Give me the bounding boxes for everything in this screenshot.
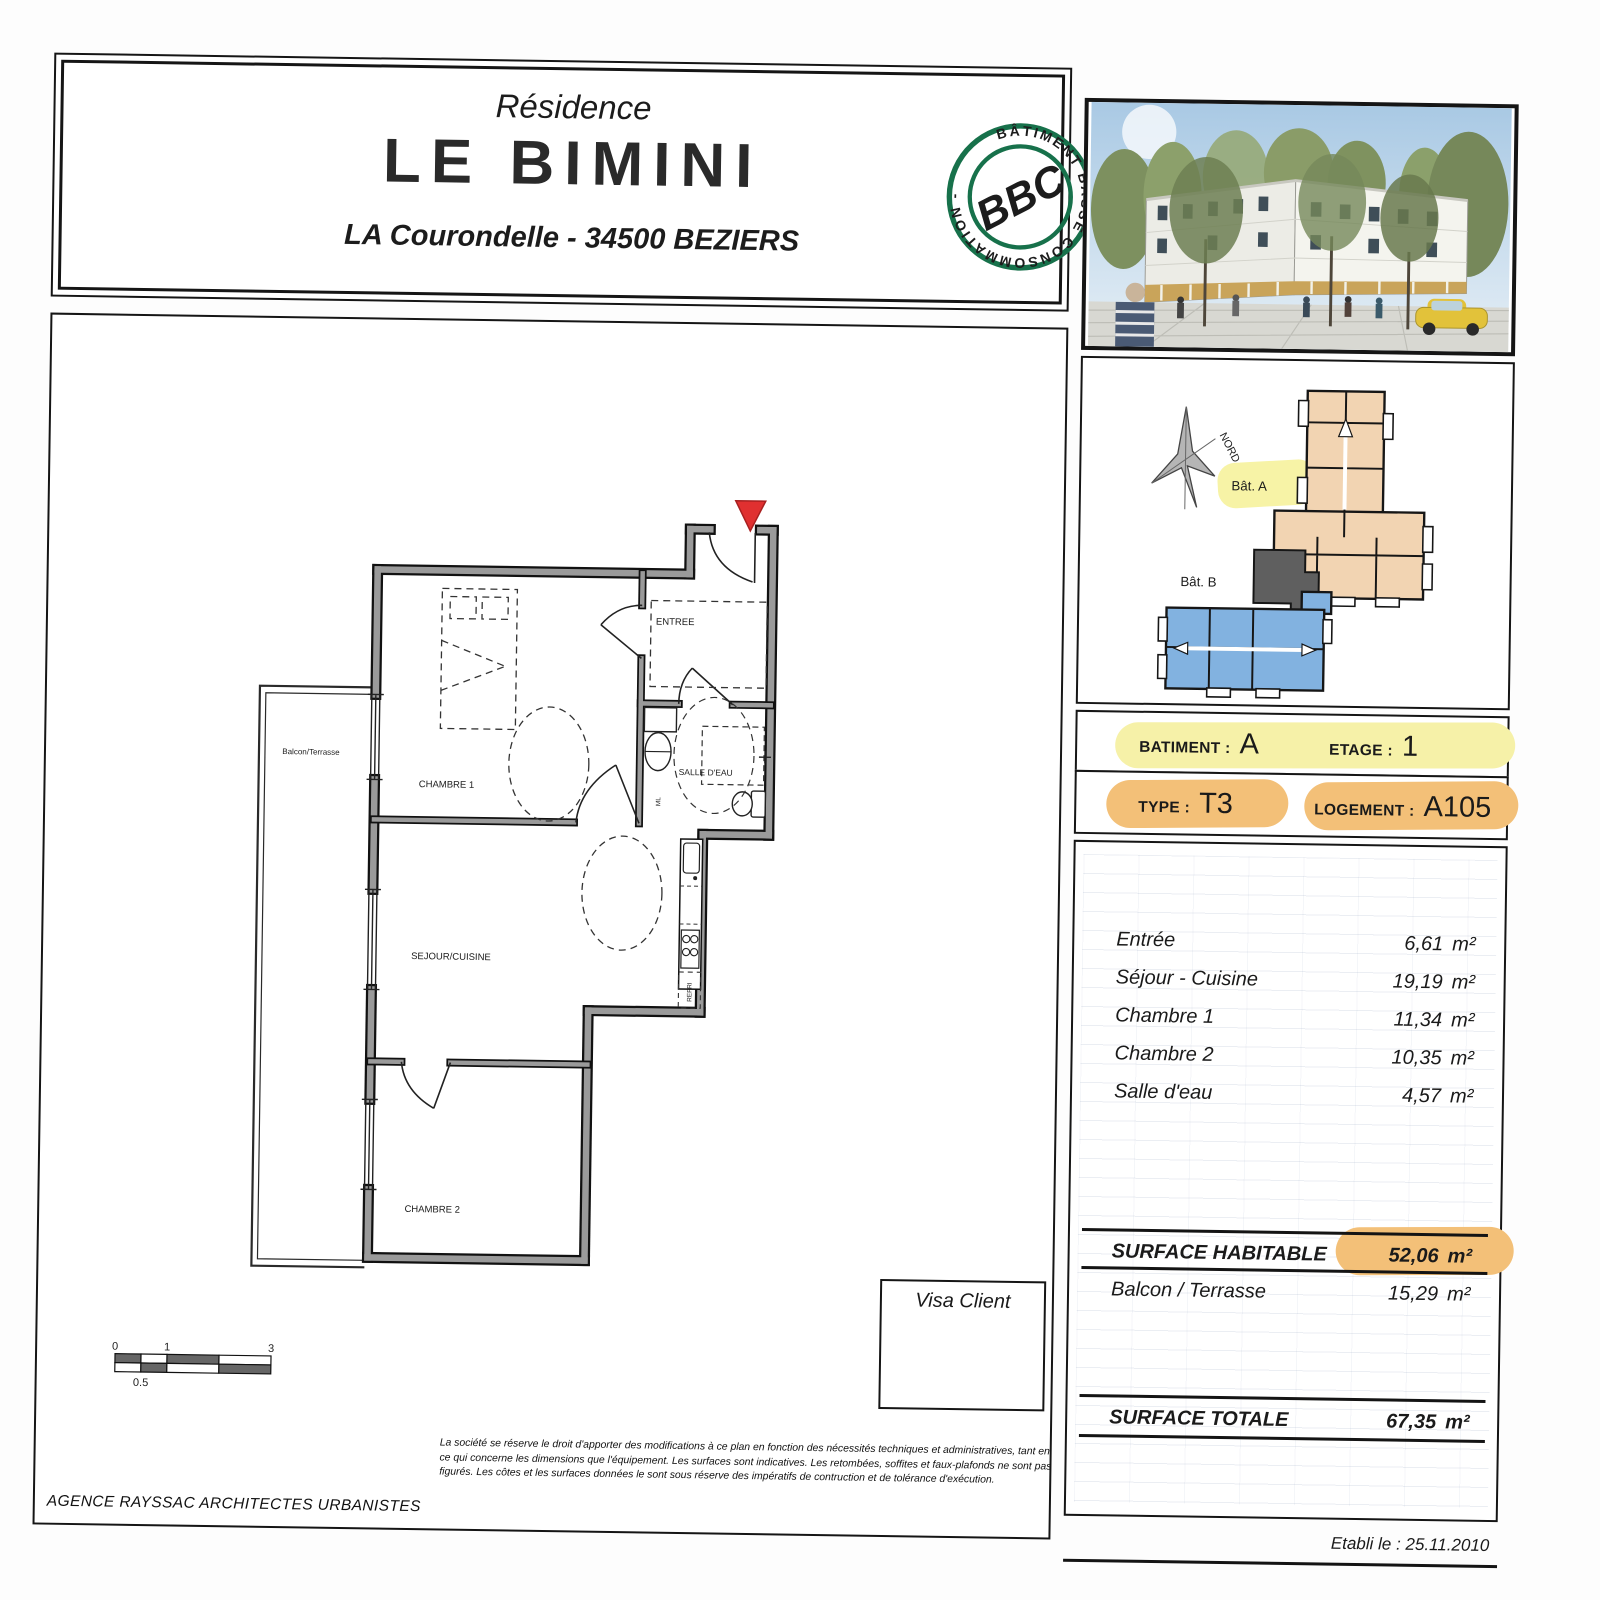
turning-circle-chambre1 (508, 706, 590, 821)
building-render-frame (1081, 98, 1519, 356)
scale-3: 3 (268, 1343, 274, 1355)
scale-segments (115, 1354, 271, 1374)
etage-value: 1 (1402, 731, 1419, 764)
logement-value: A105 (1423, 791, 1491, 825)
balcony-outline (251, 686, 373, 1268)
surface-habitable-value: 52,06 (1362, 1244, 1438, 1268)
type-label: TYPE : (1138, 799, 1190, 818)
areas-table: Entrée 6,61 m² Séjour - Cuisine 19,19 m²… (1064, 840, 1508, 1522)
bat-a-label: Bât. A (1231, 478, 1267, 494)
visa-client-box: Visa Client (878, 1279, 1046, 1411)
disclaimer-text: La société se réserve le droit d'apporte… (439, 1436, 1052, 1489)
entree-label: ENTREE (656, 617, 695, 629)
logement-field: LOGEMENT : A105 (1314, 775, 1492, 838)
exterior-walls-fill (367, 524, 773, 1263)
room-label: Chambre 1 (1115, 1004, 1366, 1031)
batiment-etage-row: BATIMENT : A ETAGE : 1 (1075, 710, 1510, 778)
batiment-value: A (1239, 728, 1259, 761)
room-area-unit: m² (1443, 933, 1504, 957)
site-plan-svg: NORD (1078, 358, 1512, 707)
bed-outline (440, 588, 517, 729)
logement-label: LOGEMENT : (1314, 801, 1415, 820)
balcony-windows (361, 694, 384, 1189)
scale-0: 0 (112, 1341, 118, 1353)
etage-label: ETAGE : (1329, 742, 1393, 761)
type-field: TYPE : T3 (1138, 773, 1233, 834)
room-label: Chambre 2 (1114, 1042, 1365, 1069)
room-area-value: 19,19 (1367, 970, 1443, 994)
balcon-value: 15,29 (1362, 1282, 1438, 1306)
title-block: Résidence LE BIMINI LA Courondelle - 345… (51, 53, 1073, 312)
visa-client-label: Visa Client (915, 1289, 1011, 1313)
table-row: Chambre 2 10,35 m² (1072, 1034, 1503, 1078)
batiment-label: BATIMENT : (1139, 739, 1231, 758)
batiment-field: BATIMENT : A (1139, 713, 1260, 773)
building-render-image (1085, 102, 1515, 352)
room-area-unit: m² (1443, 971, 1504, 995)
salle-deau-label: SALLE D'EAU (679, 767, 733, 778)
surface-totale-unit: m² (1436, 1411, 1497, 1435)
room-label: Séjour - Cuisine (1116, 966, 1367, 993)
room-label: Entrée (1116, 928, 1367, 955)
room-area-value: 11,34 (1366, 1008, 1442, 1032)
agency-name: AGENCE RAYSSAC ARCHITECTES URBANISTES (47, 1493, 421, 1517)
room-area-value: 4,57 (1365, 1084, 1441, 1108)
scale-05: 0.5 (133, 1377, 148, 1389)
floor-plan-svg: Balcon/Terrasse (246, 488, 798, 1331)
etage-field: ETAGE : 1 (1329, 716, 1419, 775)
balcony-label: Balcon/Terrasse (282, 747, 340, 757)
washer-label: ML (655, 797, 662, 807)
floor-plan-frame: Balcon/Terrasse (32, 313, 1068, 1540)
title-text-group: Résidence LE BIMINI LA Courondelle - 345… (131, 64, 1014, 301)
table-row: Entrée 6,61 m² (1074, 920, 1505, 964)
batiment-b-footprint (1165, 590, 1331, 691)
title-block-inner-border: Résidence LE BIMINI LA Courondelle - 345… (58, 60, 1065, 305)
chambre1-label: CHAMBRE 1 (419, 779, 475, 791)
site-plan-frame: NORD (1076, 356, 1515, 710)
balcon-unit: m² (1438, 1283, 1499, 1307)
bathroom-fixtures (643, 696, 772, 817)
established-date: Etabli le : 25.11.2010 (1331, 1534, 1490, 1556)
balcon-row: Balcon / Terrasse 15,29 m² (1069, 1270, 1500, 1314)
chambre2-label: CHAMBRE 2 (404, 1204, 460, 1216)
room-area-unit: m² (1441, 1085, 1502, 1109)
bat-b-label: Bât. B (1180, 574, 1217, 590)
table-row: Salle d'eau 4,57 m² (1072, 1072, 1503, 1116)
room-label: Salle d'eau (1114, 1080, 1365, 1107)
residence-address: LA Courondelle - 34500 BEZIERS (131, 216, 1011, 262)
scale-1: 1 (164, 1341, 170, 1353)
document-sheet: Résidence LE BIMINI LA Courondelle - 345… (30, 45, 1522, 1572)
surface-habitable-unit: m² (1438, 1245, 1499, 1269)
sejour-label: SEJOUR/CUISINE (411, 951, 491, 963)
turning-circle-sejour (581, 836, 663, 951)
fridge-label: REFRI (686, 982, 693, 1002)
scale-bar: 0 1 3 0.5 (100, 1337, 291, 1400)
entree-closet (650, 601, 767, 689)
exterior-walls (367, 524, 773, 1263)
balcon-label: Balcon / Terrasse (1111, 1278, 1362, 1305)
scanned-plan-sheet: Résidence LE BIMINI LA Courondelle - 345… (0, 0, 1600, 1600)
surface-totale-value: 67,35 (1360, 1410, 1436, 1434)
residence-name: LE BIMINI (132, 122, 1013, 206)
type-logement-row: TYPE : T3 LOGEMENT : A105 (1074, 770, 1509, 840)
table-row: Chambre 1 11,34 m² (1073, 996, 1504, 1040)
room-area-value: 6,61 (1367, 932, 1443, 956)
surface-habitable-label: SURFACE HABITABLE (1111, 1240, 1362, 1267)
surface-totale-label: SURFACE TOTALE (1109, 1406, 1360, 1433)
room-area-unit: m² (1441, 1047, 1502, 1071)
date-row: Etabli le : 25.11.2010 (1063, 1516, 1498, 1568)
room-area-unit: m² (1442, 1009, 1503, 1033)
north-label: NORD (1217, 431, 1242, 465)
table-row: Séjour - Cuisine 19,19 m² (1073, 958, 1504, 1002)
room-area-value: 10,35 (1365, 1046, 1441, 1070)
type-value: T3 (1199, 788, 1233, 821)
right-column: NORD (1060, 60, 1522, 1571)
